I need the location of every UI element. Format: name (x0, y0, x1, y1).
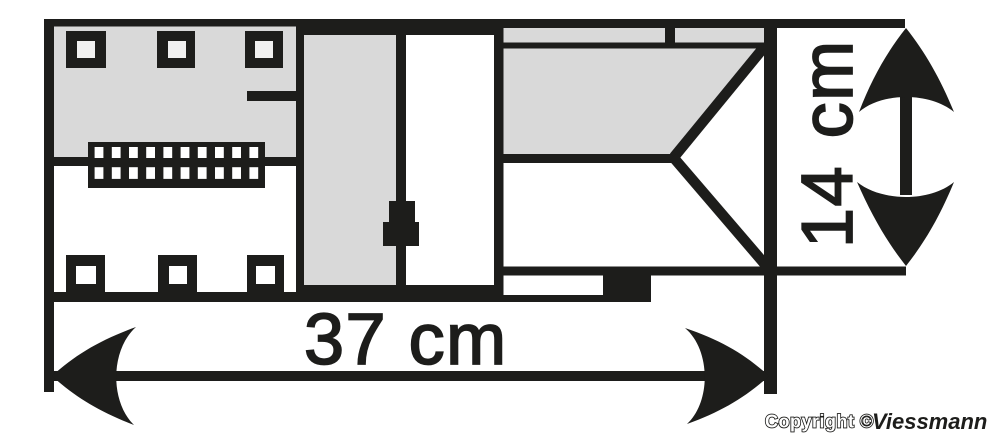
svg-text:37 cm: 37 cm (304, 300, 508, 380)
svg-text:Viessmann: Viessmann (872, 409, 987, 434)
svg-text:Copyright ©: Copyright © (765, 412, 874, 432)
svg-text:14 cm: 14 cm (788, 39, 868, 248)
